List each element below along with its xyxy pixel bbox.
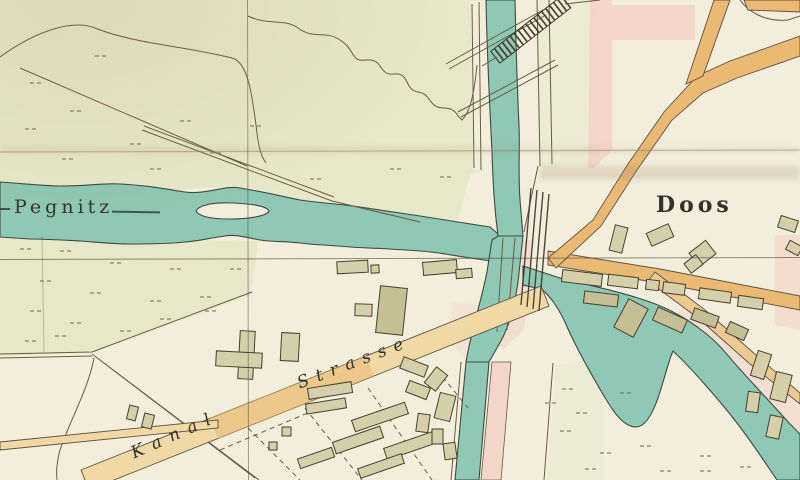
building <box>337 260 369 274</box>
meadow-tick <box>20 248 34 250</box>
building <box>646 224 674 247</box>
meadow-tick <box>55 335 69 337</box>
pink-band-vertical <box>588 0 612 168</box>
building <box>358 454 405 478</box>
meadow-tick <box>70 110 84 112</box>
historic-city-map: Pegnitz Doos Kanal Strasse <box>0 0 800 480</box>
meadow-tick <box>90 292 104 294</box>
meadow-tick <box>545 402 559 404</box>
meadow-tick <box>210 152 224 154</box>
meadow-tick <box>700 470 714 472</box>
building <box>126 405 138 421</box>
meadow-tick <box>160 318 174 320</box>
meadow-tick <box>25 340 39 342</box>
meadow-tick <box>70 322 84 324</box>
meadow-tick <box>600 452 614 454</box>
meadow-tick <box>440 176 454 178</box>
building <box>416 413 430 432</box>
meadow-tick <box>620 392 634 394</box>
building <box>432 429 443 444</box>
meadow-tick <box>640 445 654 447</box>
meadow-tick <box>170 268 184 270</box>
building <box>609 225 628 253</box>
building <box>645 279 659 291</box>
building <box>434 392 456 421</box>
meadow-tick <box>700 455 714 457</box>
building <box>280 333 299 362</box>
town-label-doos: Doos <box>656 192 733 218</box>
building <box>456 268 473 278</box>
fold-smudge-right <box>540 166 800 180</box>
meadow-tick <box>576 412 590 414</box>
meadow-tick <box>62 158 76 160</box>
building <box>269 442 277 450</box>
meadow-tick <box>230 268 244 270</box>
meadow-tick <box>200 296 214 298</box>
meadow-tick <box>130 143 144 145</box>
meadow-tick <box>310 178 324 180</box>
meadow-tick <box>60 250 74 252</box>
meadow-tick <box>740 466 754 468</box>
meadow-tick <box>390 168 404 170</box>
meadow-tick <box>30 82 44 84</box>
building <box>371 265 379 273</box>
meadow-tick <box>150 168 164 170</box>
top-edge-road <box>744 0 800 12</box>
meadow-tick <box>95 55 109 57</box>
meadow-tick <box>660 470 674 472</box>
building <box>376 286 408 336</box>
meadow-tick <box>110 262 124 264</box>
meadow-tick <box>150 300 164 302</box>
meadow-tick <box>30 310 44 312</box>
meadow-tick <box>250 125 264 127</box>
building <box>778 216 799 233</box>
meadow-tick <box>560 430 574 432</box>
meadow-tick <box>120 330 134 332</box>
river-island <box>196 203 269 219</box>
river-label-pegnitz: Pegnitz <box>14 196 113 218</box>
building <box>662 282 685 296</box>
building <box>746 391 761 412</box>
building <box>443 442 457 460</box>
building <box>355 304 372 317</box>
meadow-tick <box>205 310 219 312</box>
meadow-tick <box>40 280 54 282</box>
curvy-field-line <box>57 358 94 480</box>
building <box>282 427 291 436</box>
pink-band-top <box>612 5 695 40</box>
meadow-tick <box>562 388 576 390</box>
building <box>216 351 263 368</box>
river-label-dash-left <box>0 208 10 210</box>
building <box>422 260 457 276</box>
meadow-tick <box>180 120 194 122</box>
building <box>297 447 334 468</box>
map-canvas <box>0 0 800 480</box>
meadow-tick <box>585 468 599 470</box>
meadow-tick <box>25 128 39 130</box>
